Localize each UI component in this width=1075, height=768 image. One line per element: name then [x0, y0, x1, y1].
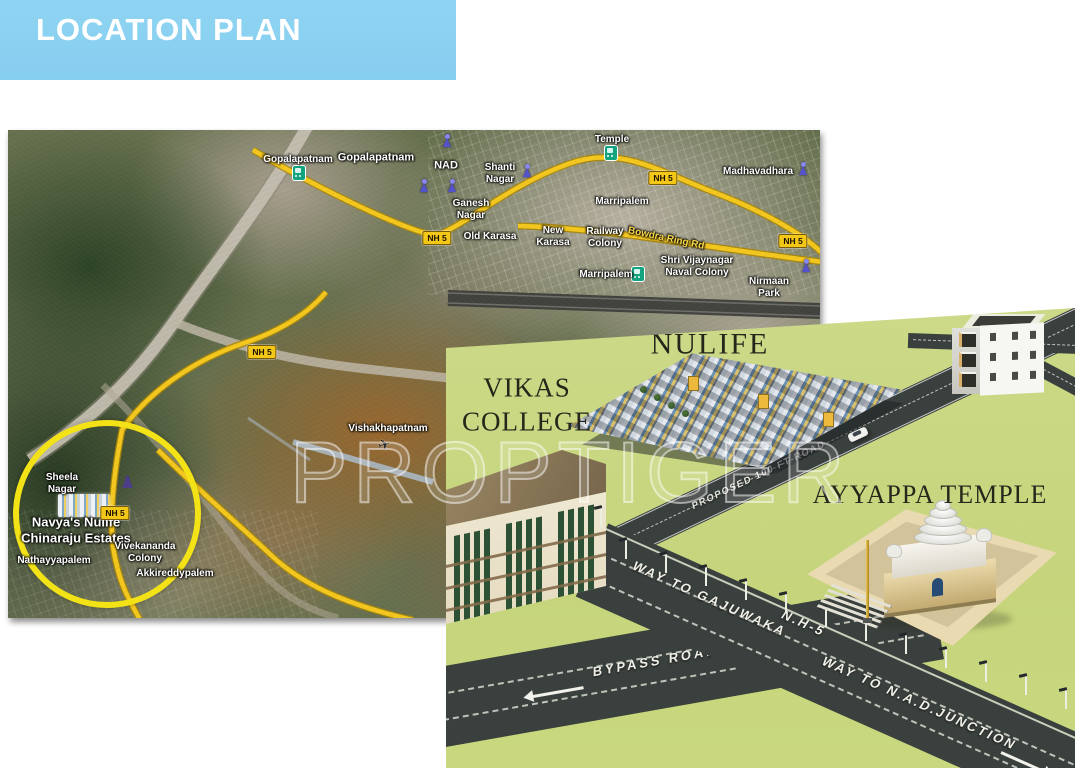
nh5-road-badge: NH 5 — [422, 231, 451, 245]
train-station-icon — [604, 145, 618, 161]
tree-icon — [668, 402, 675, 409]
vikas-college-label: VIKAS COLLEGE — [442, 371, 612, 439]
street-lamp — [705, 567, 707, 586]
map-label-temple: Temple — [595, 134, 629, 146]
ayyappa-temple-illustration — [802, 500, 1062, 655]
tower-block — [758, 394, 769, 409]
map-label-shanti-nagar: Shanti Nagar — [485, 162, 516, 186]
map-label-shri-vijaynagar: Shri Vijaynagar Naval Colony — [661, 255, 734, 279]
landmark-marker-icon — [799, 162, 807, 175]
map-label-vishakhapatnam: Vishakhapatnam — [348, 423, 427, 435]
map-label-railway-colony: Railway Colony — [586, 226, 623, 250]
street-lamp — [785, 594, 787, 613]
street-lamp — [1025, 676, 1027, 695]
vikas-college-building — [446, 448, 612, 626]
tree-icon — [682, 410, 689, 417]
landmark-marker-icon — [443, 134, 451, 147]
ayyappa-temple-label: AYYAPPA TEMPLE — [813, 479, 1048, 512]
white-building — [952, 314, 1044, 398]
street-lamp — [600, 508, 602, 527]
landmark-marker-icon — [448, 179, 456, 192]
tree-icon — [654, 394, 661, 401]
map-label-sheela-nagar: Sheela Nagar — [46, 472, 78, 496]
nad-arrow-right — [1000, 751, 1045, 768]
train-station-icon — [631, 266, 645, 282]
map-label-marripalem-station: Marripalem — [579, 269, 632, 281]
temple-flagpole — [866, 540, 869, 620]
map-label-madhavadhara: Madhavadhara — [723, 166, 793, 178]
nh5-road-badge: NH 5 — [100, 506, 129, 520]
map-label-nad: NAD — [434, 159, 458, 172]
location-plan-header: LOCATION PLAN — [0, 0, 456, 80]
street-lamp — [1065, 690, 1067, 709]
map-label-vivekananda-colony: Vivekananda Colony — [115, 541, 176, 565]
map-label-nathayyapalem: Nathayyapalem — [17, 555, 90, 567]
map-label-gopalapatnam: Gopalapatnam — [338, 151, 414, 164]
nh5-road-badge: NH 5 — [778, 234, 807, 248]
tree-icon — [640, 386, 647, 393]
nh5-road-badge: NH 5 — [648, 171, 677, 185]
map-label-new-karasa: New Karasa — [536, 225, 569, 249]
landmark-marker-icon — [802, 259, 810, 272]
nulife-complex-illustration — [568, 346, 903, 468]
street-lamp — [665, 554, 667, 573]
landmark-marker-icon — [420, 179, 428, 192]
train-station-icon — [292, 165, 306, 181]
map-label-marripalem: Marripalem — [595, 196, 648, 208]
map-label-gopalapatnam-west: Gopalapatnam — [263, 154, 332, 166]
illustrated-map: BYPASS ROAD PROPOSED 100 FT ROAD WAY TO … — [440, 308, 1075, 768]
map-label-akkireddypalem: Akkireddypalem — [136, 568, 213, 580]
map-label-ganesh-nagar: Ganesh Nagar — [453, 198, 490, 222]
map-label-nirmaan-park: Nirmaan Park — [749, 276, 789, 300]
street-lamp — [745, 581, 747, 600]
tower-block — [688, 376, 699, 391]
street-lamp — [625, 540, 627, 559]
map-label-old-karasa: Old Karasa — [464, 231, 517, 243]
tower-block — [823, 412, 834, 427]
street-lamp — [985, 663, 987, 682]
location-plan-page: LOCATION PLAN — [0, 0, 1075, 768]
nh5-road-badge: NH 5 — [247, 345, 276, 359]
landmark-marker-icon — [523, 164, 531, 177]
page-title: LOCATION PLAN — [36, 12, 302, 48]
